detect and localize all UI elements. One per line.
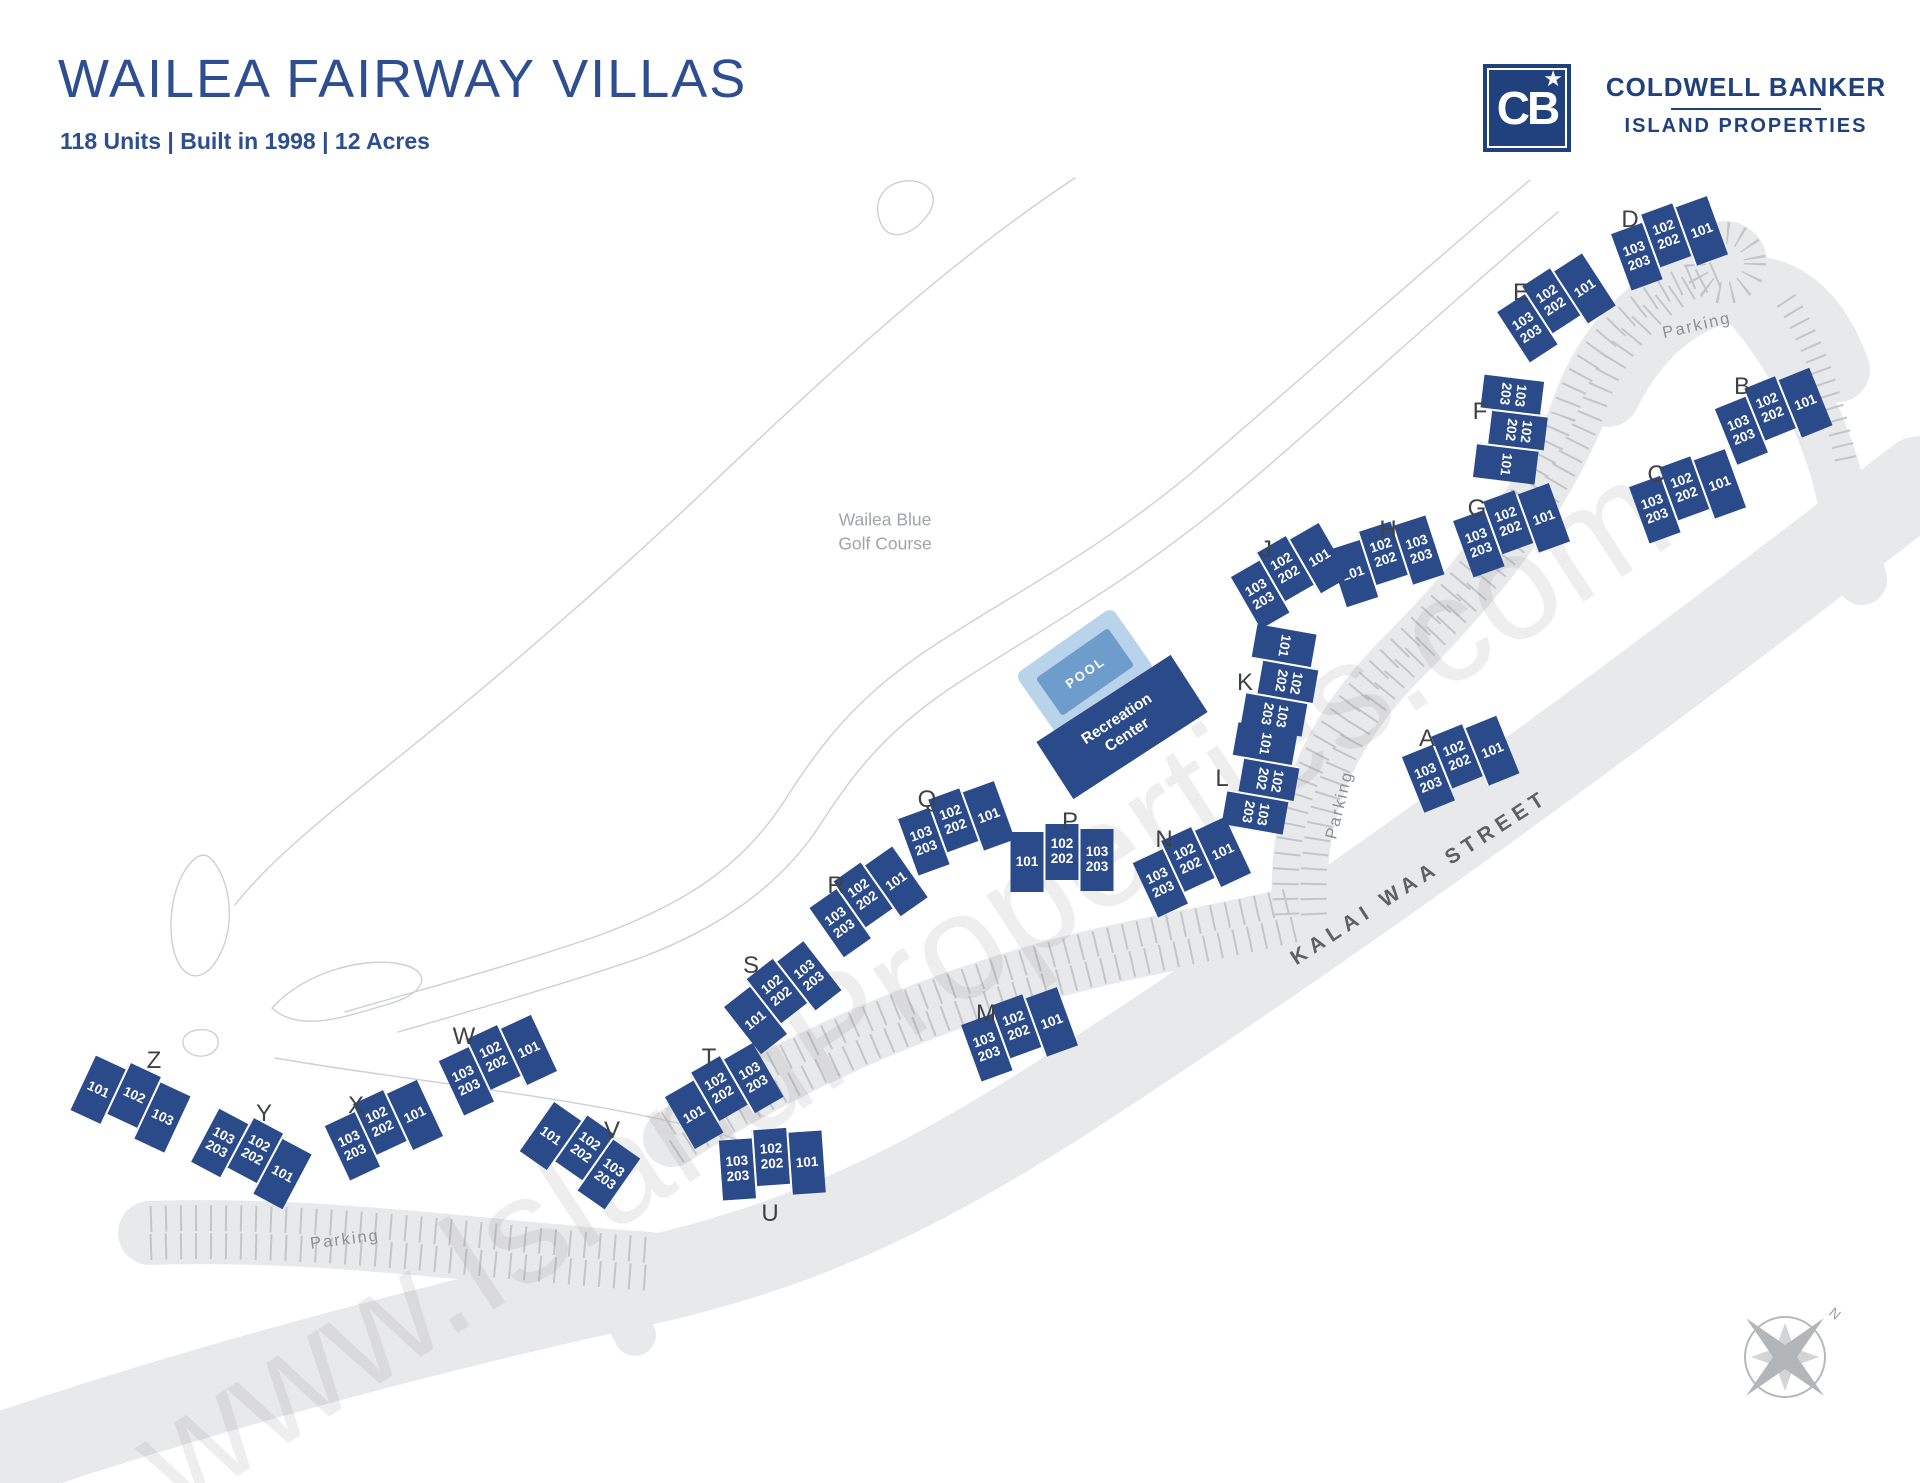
- building-label-T: T: [702, 1044, 717, 1072]
- building-label-M: M: [976, 1000, 996, 1028]
- building-label-K: K: [1237, 669, 1253, 697]
- golf-bunker: [183, 1030, 218, 1057]
- unit-section: 101: [787, 1130, 826, 1194]
- building-label-L: L: [1215, 765, 1228, 793]
- building-label-R: R: [827, 872, 844, 900]
- building-label-E: E: [1513, 279, 1529, 307]
- building-label-P: P: [1062, 808, 1078, 836]
- unit-section: 103203: [1481, 375, 1545, 415]
- building-label-Q: Q: [918, 786, 937, 814]
- unit-section: 103203: [1079, 829, 1114, 891]
- building-label-Z: Z: [147, 1047, 162, 1075]
- unit-section: 102202: [751, 1128, 790, 1186]
- building-label-V: V: [604, 1117, 620, 1145]
- golf-bunker: [272, 962, 422, 1021]
- compass-north-label: N: [1826, 1304, 1844, 1323]
- building-label-J: J: [1260, 536, 1272, 564]
- building-label-G: G: [1468, 495, 1487, 523]
- building-label-H: H: [1379, 516, 1396, 544]
- building-label-U: U: [761, 1200, 778, 1228]
- logo-star-icon: ★: [1543, 66, 1563, 92]
- building-label-X: X: [348, 1092, 364, 1120]
- unit-section: 103203: [719, 1138, 756, 1200]
- golf-course-label: Wailea Blue Golf Course: [838, 508, 931, 555]
- building-label-S: S: [743, 952, 759, 980]
- building-label-W: W: [453, 1023, 476, 1051]
- unit-section: 101: [1011, 832, 1044, 892]
- building-label-A: A: [1419, 725, 1435, 753]
- building-label-D: D: [1621, 206, 1638, 234]
- building-label-Y: Y: [256, 1100, 272, 1128]
- building-label-N: N: [1155, 826, 1172, 854]
- golf-pond-blob: [878, 181, 934, 235]
- compass-rose-icon: N: [1720, 1292, 1850, 1422]
- unit-section: 101: [1473, 442, 1539, 484]
- building-label-C: C: [1647, 461, 1664, 489]
- building-label-B: B: [1734, 373, 1750, 401]
- site-map-page: www.IslandProperties.com WAILEA FAIRWAY …: [0, 0, 1920, 1483]
- building-U: 103203102202101: [718, 1127, 825, 1196]
- coldwell-banker-logo-icon: CB ★: [1483, 64, 1571, 152]
- building-F: 103203102202101: [1476, 375, 1550, 485]
- building-label-F: F: [1473, 398, 1488, 426]
- golf-bunker: [171, 855, 229, 976]
